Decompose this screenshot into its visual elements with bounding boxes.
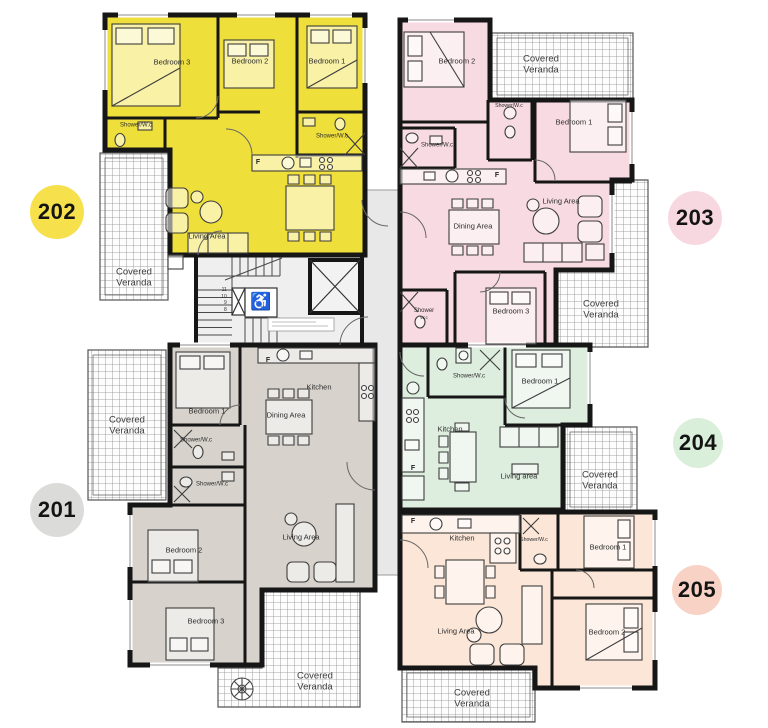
bed-202-bedroom1 <box>307 26 357 88</box>
floor-plan-drawing <box>0 0 768 728</box>
wheelchair-icon: ♿ <box>250 292 271 312</box>
dining-set-201 <box>266 389 312 445</box>
dining-set-203 <box>449 199 499 255</box>
apartment-badge-204: 204 <box>679 430 717 456</box>
apartment-badge-202: 202 <box>38 199 76 225</box>
note-box <box>268 318 334 331</box>
bed-201-bedroom1 <box>176 352 230 408</box>
apartment-badge-205: 205 <box>678 577 716 603</box>
veranda-204 <box>565 427 637 512</box>
bed-203-bedroom3 <box>486 288 536 344</box>
apartment-badge-201: 201 <box>38 497 76 523</box>
veranda-201-left <box>88 350 166 500</box>
elevator <box>310 260 360 313</box>
kitchen-202 <box>252 155 362 171</box>
bed-203-bedroom1 <box>570 100 626 152</box>
bed-205-bedroom1 <box>584 516 634 568</box>
bed-201-bedroom2 <box>148 530 198 582</box>
bed-202-bedroom3 <box>112 24 180 106</box>
kitchen-203 <box>400 169 506 184</box>
veranda-202 <box>100 153 168 300</box>
step-number: 8 <box>221 307 227 314</box>
floor-plan-image: Bedroom 3 Bedroom 2 Bedroom 1 Shower/W.c… <box>0 0 768 728</box>
bed-203-bedroom2 <box>404 32 464 87</box>
stair-step-numbers: 11 10 9 8 <box>221 287 227 313</box>
apartment-badge-203: 203 <box>676 205 714 231</box>
bed-202-bedroom2 <box>224 40 274 88</box>
veranda-205 <box>402 668 535 722</box>
bed-205-bedroom2 <box>586 604 642 660</box>
step-number: 11 <box>221 287 227 294</box>
bed-204-bedroom1 <box>512 350 570 408</box>
extractor-fan-icon <box>231 678 253 700</box>
bed-201-bedroom3 <box>166 608 214 660</box>
kitchen-204 <box>402 382 424 500</box>
veranda-203-top <box>492 33 633 100</box>
stair-landing-shaft <box>232 288 245 315</box>
